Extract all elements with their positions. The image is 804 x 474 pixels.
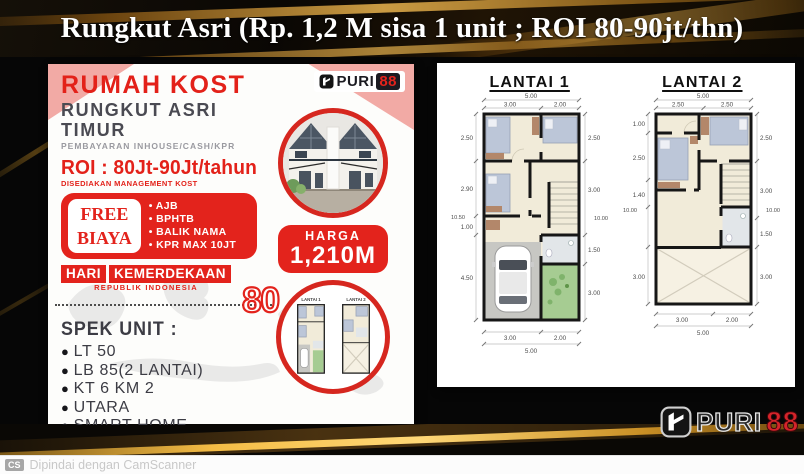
dim-label: 10.00 bbox=[594, 216, 608, 222]
dim-label: 3.00 bbox=[633, 274, 646, 281]
dim-label: 1.50 bbox=[588, 247, 601, 254]
puri88-logo-large: PURI 88 bbox=[660, 399, 799, 445]
dim-label: 1.50 bbox=[760, 231, 773, 238]
screenshot-root: Rungkut Asri (Rp. 1,2 M sisa 1 unit ; RO… bbox=[0, 0, 804, 474]
dim-label: 3.00 bbox=[760, 188, 773, 195]
free-item: BALIK NAMA bbox=[149, 226, 236, 239]
dim-label: 2.50 bbox=[672, 102, 685, 109]
dim-label: 2.90 bbox=[460, 186, 473, 193]
flyer-location: RUNGKUT ASRI TIMUR bbox=[61, 100, 267, 140]
dim-label: 5.00 bbox=[525, 348, 538, 355]
floorplan-lantai2: 5.00 2.50 2.50 1.00 2.50 1.40 3.00 10.00… bbox=[622, 92, 782, 357]
free-item: KPR MAX 10JT bbox=[149, 239, 236, 252]
dim-label: 2.00 bbox=[554, 335, 567, 342]
house-photo bbox=[278, 108, 388, 218]
dim-label: 3.00 bbox=[588, 187, 601, 194]
plan-title-lantai2: LANTAI 2 bbox=[662, 74, 742, 92]
spec-item: SMART HOME bbox=[61, 417, 267, 425]
free-biaya-label: FREE BIAYA bbox=[68, 199, 141, 253]
spec-item: KT 6 KM 2 bbox=[61, 380, 267, 399]
car-top-view bbox=[492, 246, 534, 312]
mini-floorplan-lantai2: LANTAI 2 bbox=[337, 294, 375, 380]
dim-label: 4.50 bbox=[460, 275, 473, 282]
spec-item: UTARA bbox=[61, 399, 267, 418]
dim-label: 2.00 bbox=[554, 102, 567, 109]
free-biaya-box: FREE BIAYA AJB BPHTB BALIK NAMA KPR MAX … bbox=[61, 193, 257, 259]
top-banner: Rungkut Asri (Rp. 1,2 M sisa 1 unit ; RO… bbox=[0, 0, 804, 57]
brand-number: 88 bbox=[376, 73, 400, 90]
mini-plan-label: LANTAI 1 bbox=[301, 297, 321, 302]
dim-label: 3.00 bbox=[676, 317, 689, 324]
flyer-card: RUMAH KOST RUNGKUT ASRI TIMUR PEMBAYARAN… bbox=[48, 64, 414, 425]
roi-line: ROI : 80Jt-90Jt/tahun bbox=[61, 157, 259, 179]
dim-label: 2.50 bbox=[760, 135, 773, 142]
dim-label: 3.00 bbox=[760, 274, 773, 281]
independence-subtitle: REPUBLIK INDONESIA bbox=[61, 283, 231, 292]
puri88-logo-small: PURI 88 bbox=[314, 71, 405, 92]
puri88-icon bbox=[319, 74, 334, 89]
mini-plan-label: LANTAI 2 bbox=[346, 297, 366, 302]
floorplans-card: LANTAI 1 5.00 3.00 2.00 2.50 2.90 1.00 4… bbox=[437, 63, 795, 387]
dim-label: 10.00 bbox=[623, 208, 637, 214]
price-value: 1,210M bbox=[290, 243, 376, 269]
floorplan-lantai1: 5.00 3.00 2.00 2.50 2.90 1.00 4.50 10.50… bbox=[450, 92, 610, 357]
spec-item: LT 50 bbox=[61, 343, 267, 362]
camscanner-badge: CS bbox=[5, 459, 24, 472]
biaya-word: BIAYA bbox=[77, 226, 132, 250]
independence-banner: HARI KEMERDEKAAN bbox=[61, 265, 267, 283]
spec-list: LT 50 LB 85(2 LANTAI) KT 6 KM 2 UTARA SM… bbox=[61, 343, 267, 425]
dim-label: 2.50 bbox=[460, 135, 473, 142]
price-box: HARGA 1,210M bbox=[278, 225, 388, 273]
independence-word2: KEMERDEKAAN bbox=[109, 265, 231, 283]
camscanner-bar: CS Dipindai dengan CamScanner bbox=[0, 455, 804, 474]
dim-label: 1.40 bbox=[633, 192, 646, 199]
plan-column-lantai1: LANTAI 1 5.00 3.00 2.00 2.50 2.90 1.00 4… bbox=[450, 72, 610, 387]
independence-word1: HARI bbox=[61, 265, 106, 283]
divider-80: 80 bbox=[61, 294, 267, 320]
free-items-list: AJB BPHTB BALIK NAMA KPR MAX 10JT bbox=[149, 200, 236, 252]
brand-number: 88 bbox=[766, 406, 799, 438]
brand-name: PURI bbox=[696, 407, 762, 438]
house-illustration bbox=[283, 113, 383, 213]
dim-label: 5.00 bbox=[697, 330, 710, 337]
dim-label: 2.50 bbox=[588, 135, 601, 142]
spec-item: LB 85(2 LANTAI) bbox=[61, 362, 267, 381]
free-item: AJB bbox=[149, 200, 236, 213]
camscanner-text: Dipindai dengan CamScanner bbox=[30, 458, 197, 472]
flyer-headline: RUMAH KOST bbox=[61, 72, 267, 99]
price-label: HARGA bbox=[290, 229, 376, 243]
banner-title: Rungkut Asri (Rp. 1,2 M sisa 1 unit ; RO… bbox=[0, 0, 804, 56]
dim-label: 5.00 bbox=[525, 93, 538, 100]
dim-label: 5.00 bbox=[697, 93, 710, 100]
free-item: BPHTB bbox=[149, 213, 236, 226]
dim-label: 1.00 bbox=[633, 121, 646, 128]
plan-title-lantai1: LANTAI 1 bbox=[489, 74, 569, 92]
dim-label: 3.00 bbox=[504, 335, 517, 342]
puri88-icon bbox=[660, 406, 692, 438]
flyer-media-column: HARGA 1,210M LANTAI 1 LANTAI 2 bbox=[260, 108, 406, 394]
mini-floorplans-circle: LANTAI 1 LANTAI 2 bbox=[276, 280, 390, 394]
free-word: FREE bbox=[77, 202, 132, 226]
dim-label: 3.00 bbox=[588, 290, 601, 297]
dim-label: 2.50 bbox=[633, 155, 646, 162]
brand-name: PURI bbox=[336, 73, 374, 90]
dim-label: 2.50 bbox=[721, 102, 734, 109]
plan-column-lantai2: LANTAI 2 5.00 2.50 2.50 1.00 2.50 1.40 3… bbox=[622, 72, 782, 387]
dim-label: 10.50 bbox=[451, 215, 465, 221]
spec-title: SPEK UNIT : bbox=[61, 320, 255, 340]
payment-note: PEMBAYARAN INHOUSE/CASH/KPR bbox=[61, 141, 267, 151]
dim-label: 3.00 bbox=[504, 102, 517, 109]
dim-label: 10.00 bbox=[766, 208, 780, 214]
dim-label: 2.00 bbox=[726, 317, 739, 324]
flyer-text-column: RUMAH KOST RUNGKUT ASRI TIMUR PEMBAYARAN… bbox=[61, 72, 267, 425]
mini-floorplan-lantai1: LANTAI 1 bbox=[292, 294, 330, 380]
dim-label: 1.00 bbox=[460, 224, 473, 231]
roi-note: DISEDIAKAN MANAGEMENT KOST bbox=[61, 179, 267, 188]
